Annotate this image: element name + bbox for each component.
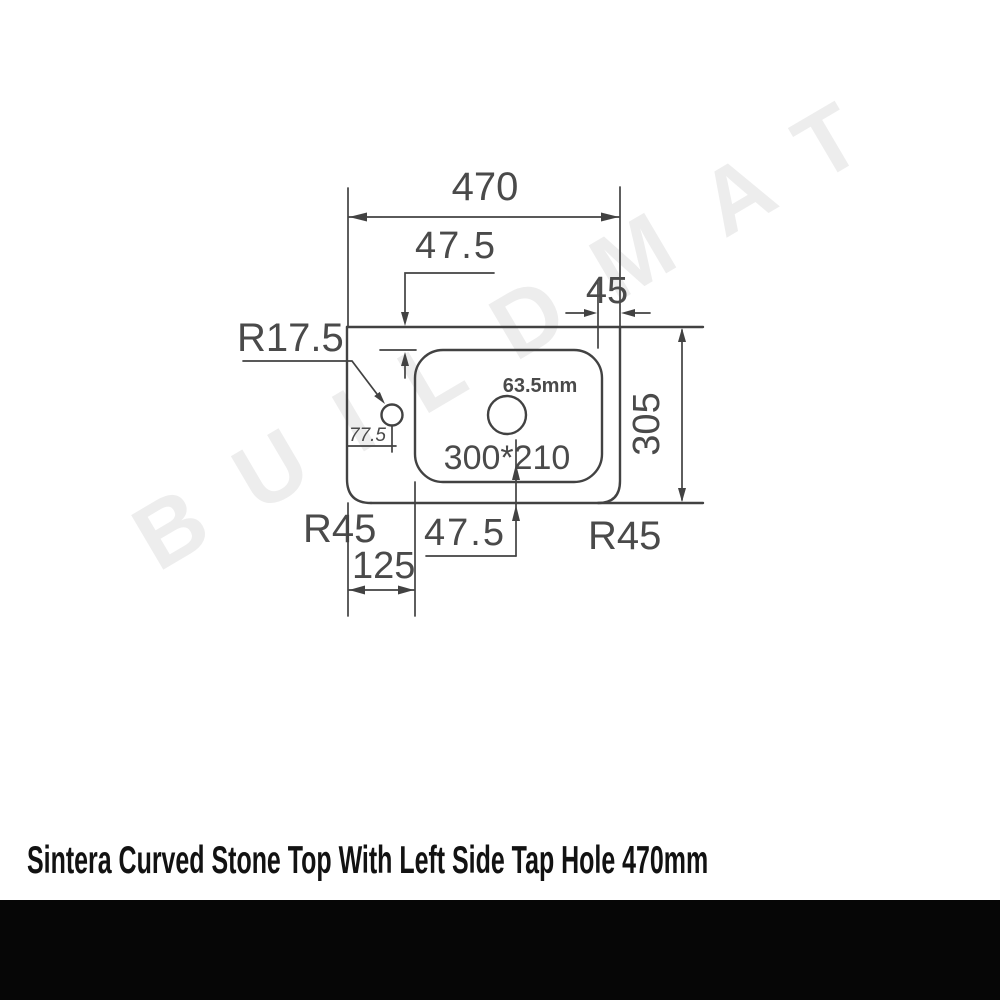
label-overall-depth: 305 bbox=[626, 392, 668, 455]
label-basin-top-offset: 47.5 bbox=[415, 225, 497, 267]
dim-tap-corner-radius: R17.5 bbox=[237, 316, 385, 404]
label-radius-bottom-right: R45 bbox=[588, 514, 661, 558]
label-drain-diameter: 63.5mm bbox=[503, 375, 578, 397]
dim-basin-top-offset: 47.5 bbox=[401, 225, 497, 378]
label-overall-width: 470 bbox=[452, 165, 519, 209]
label-tap-offset: 77.5 bbox=[349, 425, 386, 446]
dim-right-gap: 45 bbox=[566, 270, 650, 348]
dim-overall-depth: 305 bbox=[626, 328, 686, 502]
dim-tap-offset: 77.5 bbox=[347, 425, 396, 452]
product-image: BUILDMAT 470 bbox=[0, 0, 1000, 1000]
product-title: Sintera Curved Stone Top With Left Side … bbox=[27, 841, 708, 880]
label-tap-corner-radius: R17.5 bbox=[237, 316, 344, 360]
footer-bar: BUILDMAT Aulic bbox=[0, 900, 1000, 1000]
drain-hole-circle bbox=[488, 396, 526, 434]
label-basin-bottom-offset: 47.5 bbox=[424, 512, 506, 554]
label-right-gap: 45 bbox=[586, 270, 628, 312]
label-basin-size: 300*210 bbox=[444, 439, 571, 477]
label-basin-left-offset: 125 bbox=[352, 545, 415, 587]
tap-hole-circle bbox=[382, 405, 403, 426]
